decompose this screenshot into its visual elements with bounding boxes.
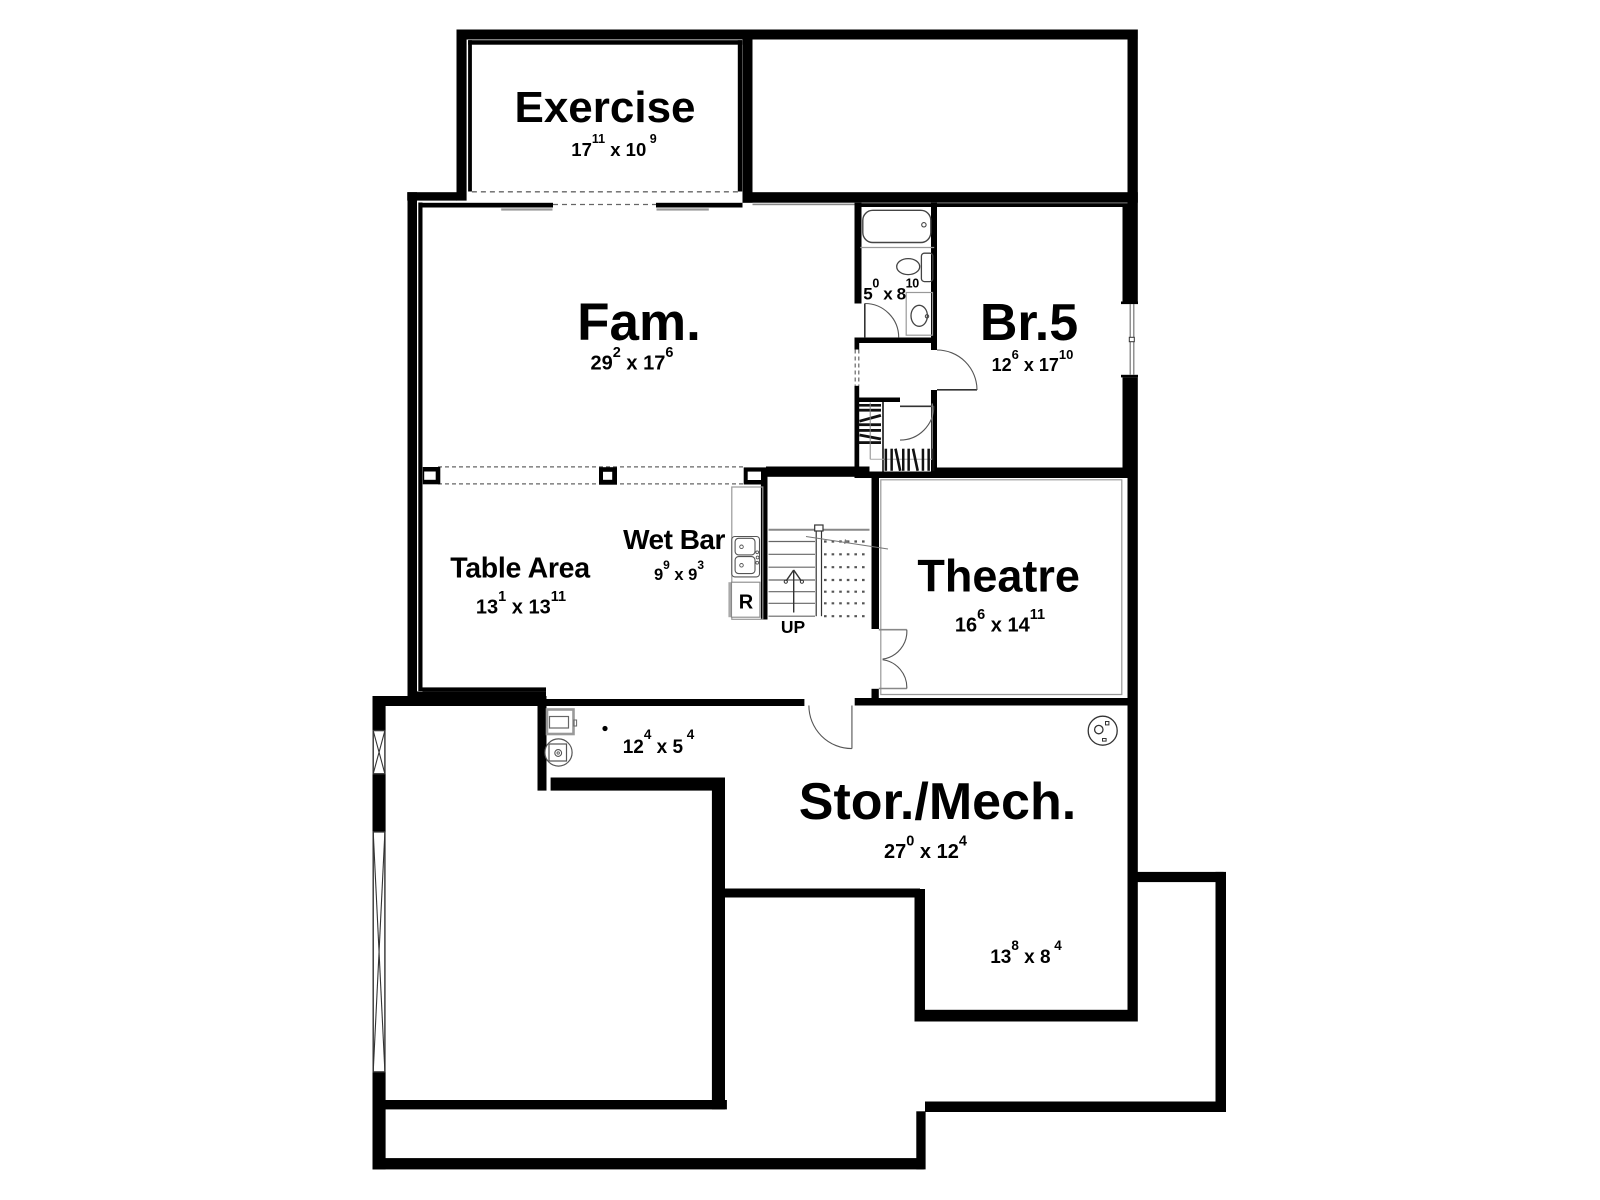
svg-text:UP: UP xyxy=(781,617,806,637)
svg-text:Exercise: Exercise xyxy=(514,83,695,132)
svg-text:Br.5: Br.5 xyxy=(980,294,1078,352)
svg-text:Fam.: Fam. xyxy=(577,293,701,352)
svg-text:R: R xyxy=(739,592,754,614)
svg-text:Table Area: Table Area xyxy=(450,553,591,585)
svg-text:Theatre: Theatre xyxy=(917,551,1080,602)
svg-text:Stor./Mech.: Stor./Mech. xyxy=(799,773,1076,831)
svg-text:Wet Bar: Wet Bar xyxy=(623,524,725,555)
